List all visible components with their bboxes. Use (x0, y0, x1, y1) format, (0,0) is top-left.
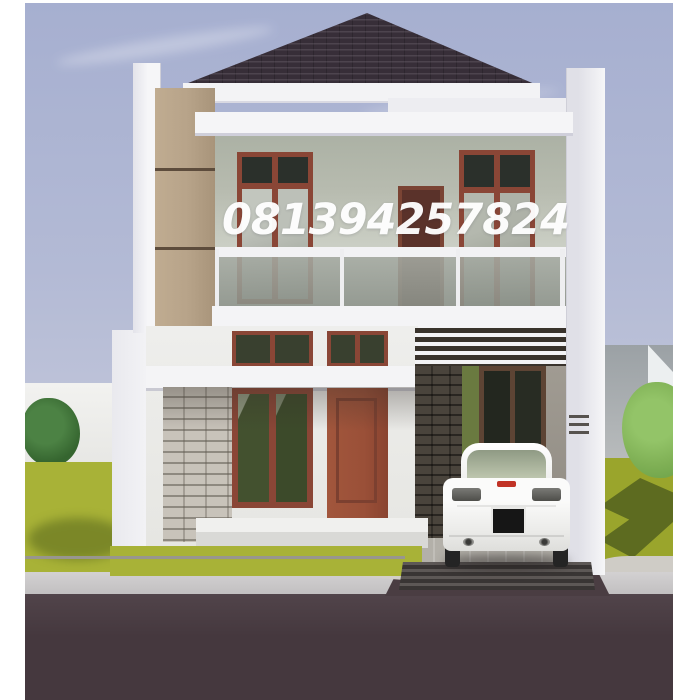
grass-front (110, 546, 422, 576)
window-transom-glass (278, 157, 308, 183)
fence-rail (25, 556, 405, 559)
car-exhaust (463, 538, 474, 546)
window-transom-glass (464, 155, 494, 187)
canopy-shadow (163, 387, 418, 431)
balcony-post (340, 249, 344, 307)
car-taillight (452, 488, 481, 501)
car-shadow (443, 555, 570, 569)
balcony-top-rail (215, 247, 566, 257)
car-rear-windshield (467, 450, 546, 481)
porch-slab (196, 518, 428, 548)
transom-glass (331, 335, 355, 363)
car-license-plate (491, 507, 526, 535)
balcony-post (456, 249, 460, 307)
carport-pergola-slats (415, 328, 566, 366)
transom-glass (360, 335, 384, 363)
balcony-post (560, 249, 565, 307)
border-right (673, 0, 700, 700)
balcony-post (215, 249, 219, 307)
border-top (0, 0, 700, 3)
render-canvas: 081394257824 (0, 0, 700, 700)
watermark-phone-number: 081394257824 (222, 194, 552, 246)
transom-glass (275, 335, 309, 363)
car-exhaust (539, 538, 550, 546)
window-transom-glass (242, 157, 272, 183)
car-taillight (532, 488, 561, 501)
accent-panel-groove (155, 168, 215, 171)
accent-panel-groove (155, 247, 215, 250)
transom-door (327, 331, 388, 367)
car-brake-light (497, 481, 516, 487)
balcony-glass-panel (215, 257, 566, 306)
car-bumper-seam (449, 535, 564, 537)
transom-window (232, 331, 313, 367)
fascia-band-lower (195, 112, 573, 136)
border-left (0, 0, 25, 700)
street (25, 594, 673, 700)
parapet-right (566, 68, 605, 575)
car (443, 443, 570, 570)
tree-left (22, 398, 80, 466)
transom-glass (236, 335, 270, 363)
carport-column-vents (569, 415, 589, 437)
window-transom-glass (500, 155, 530, 187)
